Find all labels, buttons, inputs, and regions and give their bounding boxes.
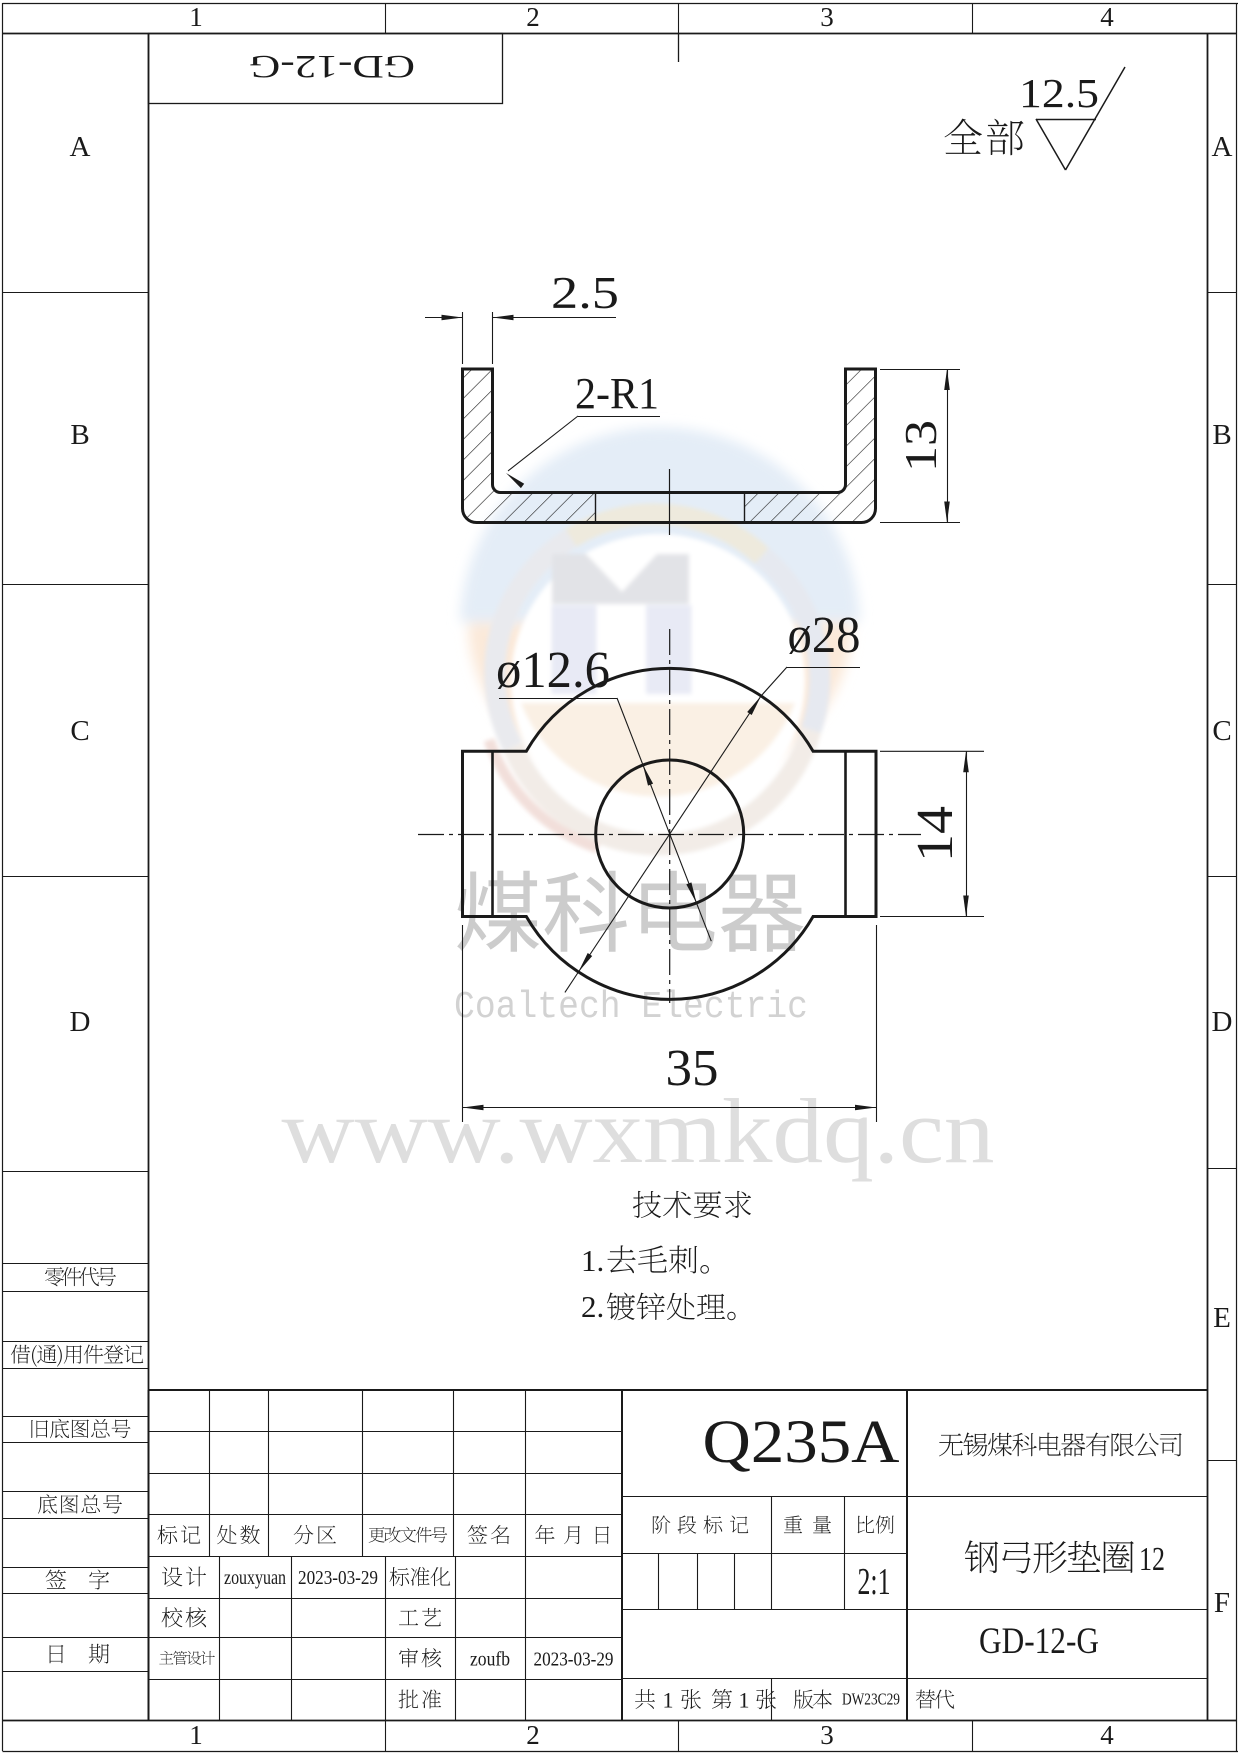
svg-text:12.5: 12.5 xyxy=(1019,70,1099,116)
svg-text:C: C xyxy=(70,715,89,747)
svg-text:D: D xyxy=(70,1006,91,1038)
svg-text:1: 1 xyxy=(189,1720,203,1750)
svg-text:13: 13 xyxy=(896,420,946,472)
svg-text:GD-12-G: GD-12-G xyxy=(249,48,415,84)
svg-text:2: 2 xyxy=(526,1720,540,1750)
svg-text:Q235A: Q235A xyxy=(703,1409,900,1476)
svg-text:12: 12 xyxy=(1139,1541,1165,1578)
svg-text:2: 2 xyxy=(526,2,540,32)
svg-text:3: 3 xyxy=(820,2,834,32)
svg-text:Coaltech Electric: Coaltech Electric xyxy=(454,986,808,1029)
svg-text:2.5: 2.5 xyxy=(551,268,619,318)
svg-text:2023-03-29: 2023-03-29 xyxy=(298,1567,378,1589)
svg-text:zoufb: zoufb xyxy=(470,1648,510,1670)
svg-text:D: D xyxy=(1212,1006,1233,1038)
svg-text:2023-03-29: 2023-03-29 xyxy=(534,1648,614,1670)
svg-text:B: B xyxy=(70,419,89,451)
svg-text:3: 3 xyxy=(820,1720,834,1750)
svg-text:4: 4 xyxy=(1100,2,1114,32)
svg-text:F: F xyxy=(1214,1587,1230,1619)
svg-text:A: A xyxy=(1212,131,1233,163)
svg-text:35: 35 xyxy=(666,1040,719,1097)
svg-text:2-R1: 2-R1 xyxy=(575,369,659,418)
svg-text:ø12.6: ø12.6 xyxy=(496,642,610,699)
svg-text:1: 1 xyxy=(663,1688,674,1713)
svg-text:C: C xyxy=(1212,715,1231,747)
svg-text:DW23C29: DW23C29 xyxy=(842,1690,900,1709)
svg-text:ø28: ø28 xyxy=(788,607,861,664)
svg-text:4: 4 xyxy=(1100,1720,1114,1750)
svg-text:1: 1 xyxy=(189,2,203,32)
svg-text:GD-12-G: GD-12-G xyxy=(979,1621,1099,1662)
svg-text:14: 14 xyxy=(907,806,964,862)
svg-text:zouxyuan: zouxyuan xyxy=(224,1567,286,1589)
svg-text:2.: 2. xyxy=(581,1289,604,1324)
svg-text:2:1: 2:1 xyxy=(858,1561,891,1603)
svg-text:www.wxmkdq.cn: www.wxmkdq.cn xyxy=(282,1080,995,1182)
svg-text:1: 1 xyxy=(739,1688,750,1713)
svg-text:E: E xyxy=(1213,1302,1231,1334)
svg-text:B: B xyxy=(1212,419,1231,451)
svg-text:1.: 1. xyxy=(581,1243,604,1278)
svg-text:A: A xyxy=(70,131,91,163)
